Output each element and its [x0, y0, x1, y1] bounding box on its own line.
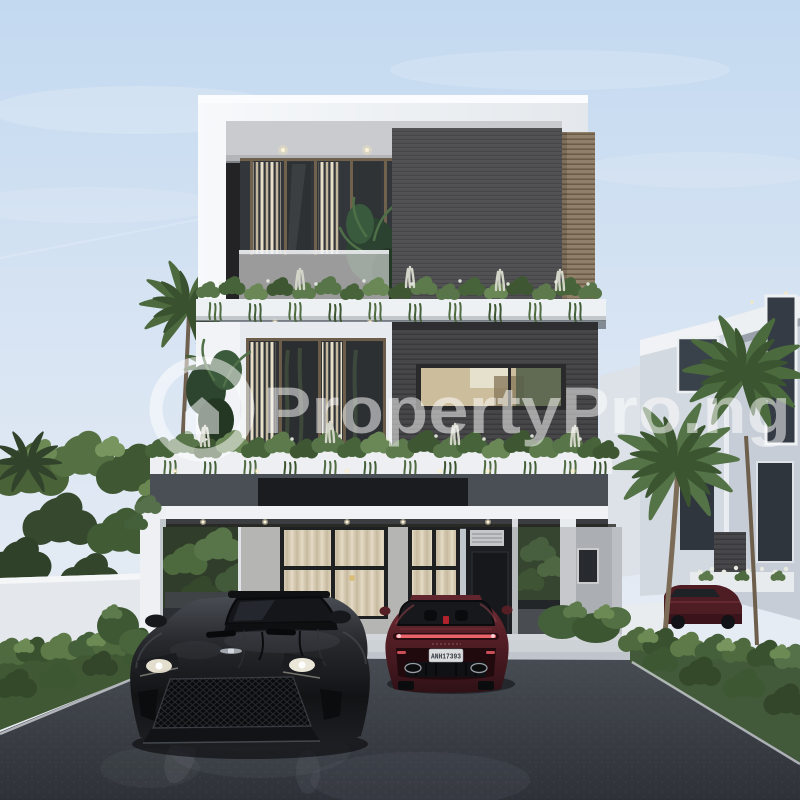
neighbor-downlight — [750, 300, 753, 303]
neighbor-slat-box — [714, 532, 746, 578]
balustrade-cap — [239, 250, 389, 254]
top-floor — [198, 95, 595, 312]
license-plate-text: ANH17393 — [431, 654, 461, 662]
hood-vent-right — [266, 628, 296, 635]
winged-badge — [220, 648, 242, 654]
neighbor-window-lower — [757, 462, 793, 562]
exhaust-left — [405, 664, 421, 673]
mirror-left — [145, 615, 167, 628]
neighbor-downlight — [784, 291, 787, 294]
brake-light-emblem — [443, 616, 449, 624]
front-grille — [153, 677, 311, 728]
mirror-left — [380, 607, 391, 616]
mirror-right — [502, 606, 513, 615]
canopy-dark-fascia — [258, 478, 468, 507]
exhaust-right — [471, 664, 487, 673]
mirror-right — [329, 611, 351, 624]
listing-photo: ANH17393 PropertyPro.ng — [0, 0, 800, 800]
tail-light-bar — [393, 633, 499, 640]
distant-car — [664, 585, 742, 629]
canopy-beam — [140, 506, 608, 519]
parapet-highlight — [198, 95, 588, 103]
watermark-text: PropertyPro.ng — [263, 373, 791, 447]
license-plate: ANH17393 — [429, 649, 463, 662]
